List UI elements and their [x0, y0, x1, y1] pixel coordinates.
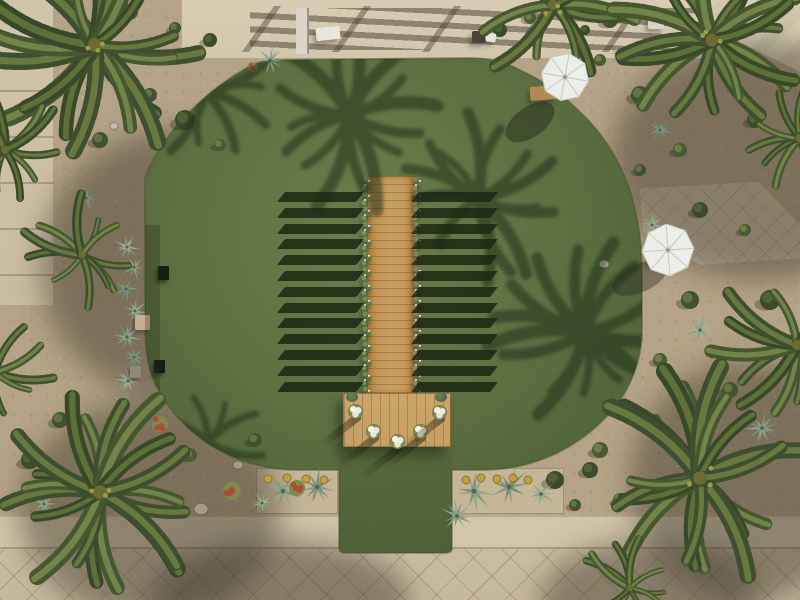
shadows-on-lawn [127, 16, 684, 494]
palm-tree-canopy [3, 394, 186, 590]
white-market-umbrella [642, 224, 694, 276]
shadows-palms-umbrellas-layer [0, 0, 800, 600]
palm-tree-canopy [748, 81, 800, 198]
white-market-umbrella [541, 53, 588, 100]
palm-tree-canopy [611, 0, 798, 117]
palm-tree-canopy [0, 311, 55, 414]
aerial-photo-wedding-lawn [0, 0, 800, 600]
palm-tree-canopy [23, 192, 130, 308]
umbrella-shadow [498, 94, 561, 151]
palm-shadow-on-lawn [277, 25, 438, 210]
